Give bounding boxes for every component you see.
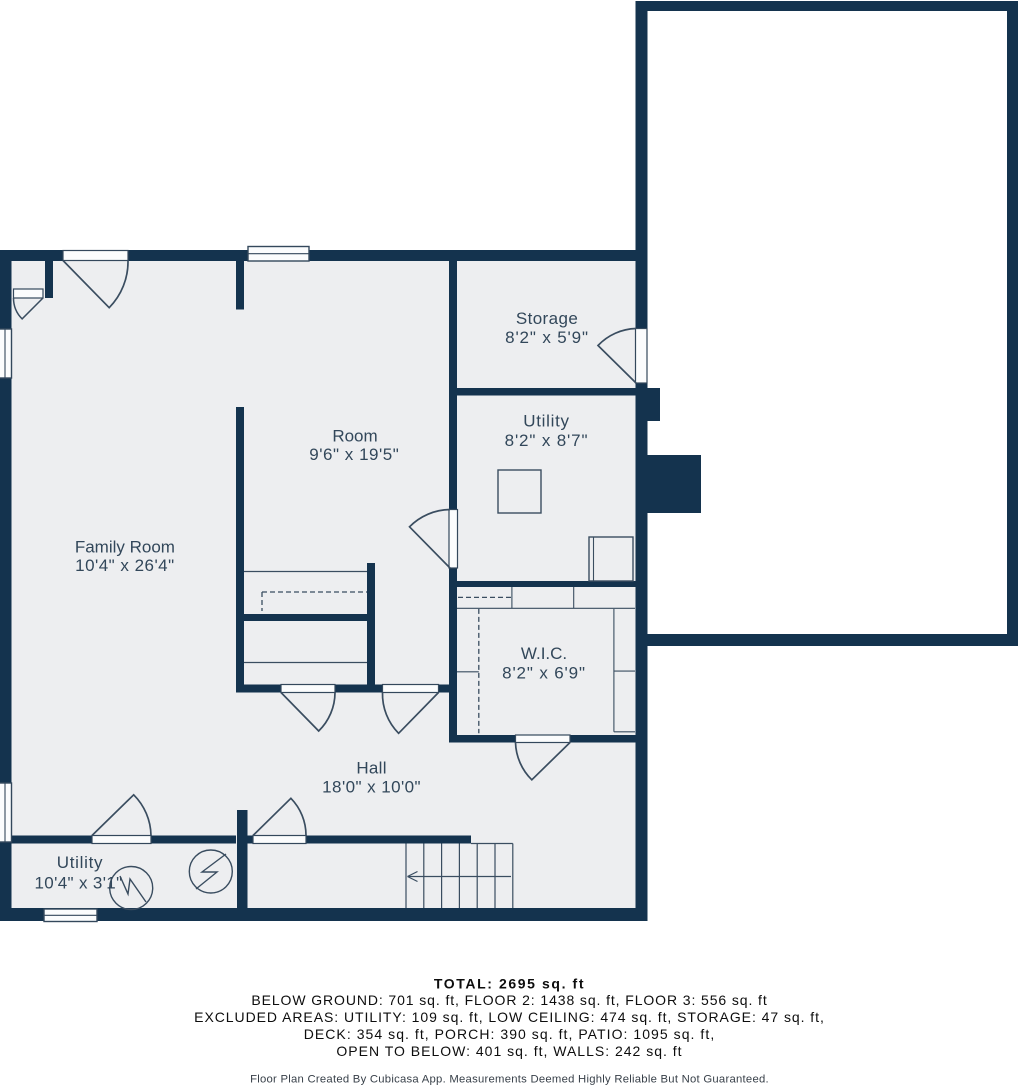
svg-text:8'2" x 8'7": 8'2" x 8'7": [505, 431, 589, 450]
svg-text:10'4" x 3'1": 10'4" x 3'1": [35, 874, 123, 893]
svg-text:Hall: Hall: [356, 759, 387, 778]
svg-text:Room: Room: [332, 427, 377, 446]
svg-text:W.I.C.: W.I.C.: [521, 644, 567, 663]
svg-text:Storage: Storage: [516, 309, 578, 328]
svg-text:BELOW GROUND: 701 sq. ft, FLOO: BELOW GROUND: 701 sq. ft, FLOOR 2: 1438 …: [251, 992, 767, 1008]
svg-text:Family Room: Family Room: [75, 538, 175, 557]
svg-text:8'2" x 5'9": 8'2" x 5'9": [505, 328, 589, 347]
svg-text:DECK: 354 sq. ft, PORCH: 390 s: DECK: 354 sq. ft, PORCH: 390 sq. ft, PAT…: [304, 1026, 716, 1042]
svg-text:EXCLUDED AREAS: UTILITY: 109 s: EXCLUDED AREAS: UTILITY: 109 sq. ft, LOW…: [194, 1009, 825, 1025]
svg-text:8'2" x 6'9": 8'2" x 6'9": [502, 664, 586, 683]
svg-text:9'6" x 19'5": 9'6" x 19'5": [309, 445, 399, 464]
svg-text:Utility: Utility: [523, 412, 569, 431]
svg-text:18'0" x 10'0": 18'0" x 10'0": [322, 777, 421, 796]
svg-text:Utility: Utility: [57, 853, 103, 872]
svg-text:TOTAL: 2695 sq. ft: TOTAL: 2695 sq. ft: [434, 976, 585, 992]
svg-text:OPEN TO BELOW: 401 sq. ft, WAL: OPEN TO BELOW: 401 sq. ft, WALLS: 242 sq…: [336, 1043, 682, 1059]
svg-text:Floor Plan Created By Cubicasa: Floor Plan Created By Cubicasa App. Meas…: [250, 1074, 769, 1086]
svg-text:10'4" x 26'4": 10'4" x 26'4": [75, 556, 174, 575]
